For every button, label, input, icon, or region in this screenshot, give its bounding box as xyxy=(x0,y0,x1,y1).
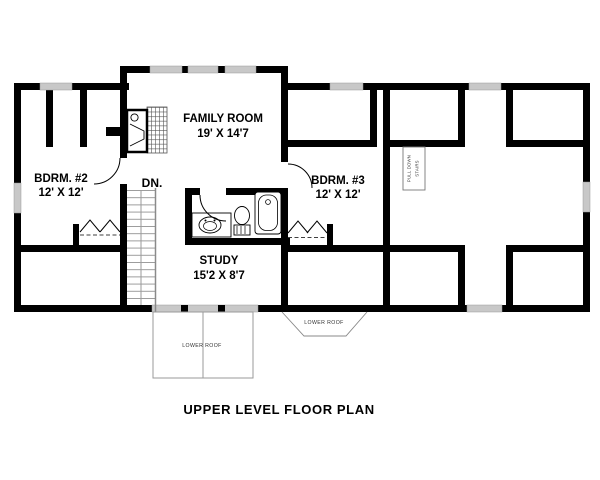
bifold-doors-bedroom-2 xyxy=(80,220,120,232)
exterior-walls xyxy=(14,66,590,312)
wall-segment xyxy=(506,90,513,147)
faucet-dot xyxy=(214,220,216,222)
wall-segment xyxy=(458,90,465,147)
wall-segment xyxy=(383,90,390,305)
family-room-label: FAMILY ROOM xyxy=(183,113,263,125)
wall-segment xyxy=(370,90,377,147)
patio-door-glass xyxy=(152,305,258,312)
wall-segment xyxy=(80,90,87,147)
floor-plan-title: UPPER LEVEL FLOOR PLAN xyxy=(183,402,374,417)
lower-roof-deck: LOWER ROOF xyxy=(153,312,253,378)
wall-segment xyxy=(120,184,127,305)
pull-down-stairs-label-line2: STAIRS xyxy=(415,160,420,176)
floor-plan-drawing: PULL DOWN STAIRS LOWER ROOF LOWER ROOF F… xyxy=(0,0,600,480)
fireplace-hearth xyxy=(147,107,167,153)
bathroom xyxy=(192,192,281,237)
study-dims: 15'2 X 8'7 xyxy=(193,270,245,282)
window xyxy=(469,83,501,90)
wall-segment xyxy=(281,245,390,252)
bedroom-2-dims: 12' X 12' xyxy=(38,187,83,199)
wall-segment xyxy=(46,90,53,147)
lower-roof-bay: LOWER ROOF xyxy=(282,312,367,336)
study-label: STUDY xyxy=(200,255,239,267)
staircase xyxy=(127,188,156,312)
wall-segment xyxy=(185,188,192,245)
window xyxy=(330,83,363,90)
wall-segment xyxy=(14,305,590,312)
window xyxy=(150,66,182,73)
pull-down-stairs: PULL DOWN STAIRS xyxy=(403,147,425,190)
window xyxy=(225,66,256,73)
window xyxy=(40,83,72,90)
window xyxy=(583,182,590,212)
wall-segment xyxy=(281,83,590,90)
family-room-dims: 19' X 14'7 xyxy=(197,128,249,140)
toilet-tank xyxy=(234,225,250,235)
wall-segment xyxy=(383,245,465,252)
toilet-icon xyxy=(235,207,250,225)
wall-segment xyxy=(513,140,583,147)
window xyxy=(188,66,218,73)
door-mullion xyxy=(218,305,225,312)
wall-segment xyxy=(506,245,590,252)
floor-plan-page: PULL DOWN STAIRS LOWER ROOF LOWER ROOF F… xyxy=(0,0,600,480)
wall-segment xyxy=(185,238,290,245)
lower-roof-deck-label: LOWER ROOF xyxy=(182,343,221,349)
wall-segment xyxy=(21,245,120,252)
window xyxy=(467,305,502,312)
windows xyxy=(14,66,590,312)
bedroom-3-dims: 12' X 12' xyxy=(315,189,360,201)
lower-roof-bay-label: LOWER ROOF xyxy=(304,320,343,326)
door-arc-bedroom-3 xyxy=(288,164,312,188)
bedroom-3-label: BDRM. #3 xyxy=(311,175,365,187)
faucet-dot xyxy=(205,220,207,222)
window xyxy=(14,183,21,213)
door-arc-bedroom-2 xyxy=(94,158,120,184)
bedroom-2-label: BDRM. #2 xyxy=(34,173,88,185)
wall-segment xyxy=(458,252,465,305)
wall-segment xyxy=(390,140,458,147)
bifold-doors-bedroom-3 xyxy=(288,221,327,233)
wall-segment xyxy=(281,90,288,162)
fireplace xyxy=(127,107,167,153)
wall-segment xyxy=(506,252,513,305)
wall-segment xyxy=(288,140,370,147)
pull-down-stairs-label-line1: PULL DOWN xyxy=(407,155,412,182)
door-mullion xyxy=(181,305,188,312)
interior-walls xyxy=(21,90,590,305)
wall-segment xyxy=(106,127,120,136)
wall-segment xyxy=(120,66,127,90)
wall-segment xyxy=(281,66,288,90)
stairs-down-label: DN. xyxy=(142,176,163,190)
